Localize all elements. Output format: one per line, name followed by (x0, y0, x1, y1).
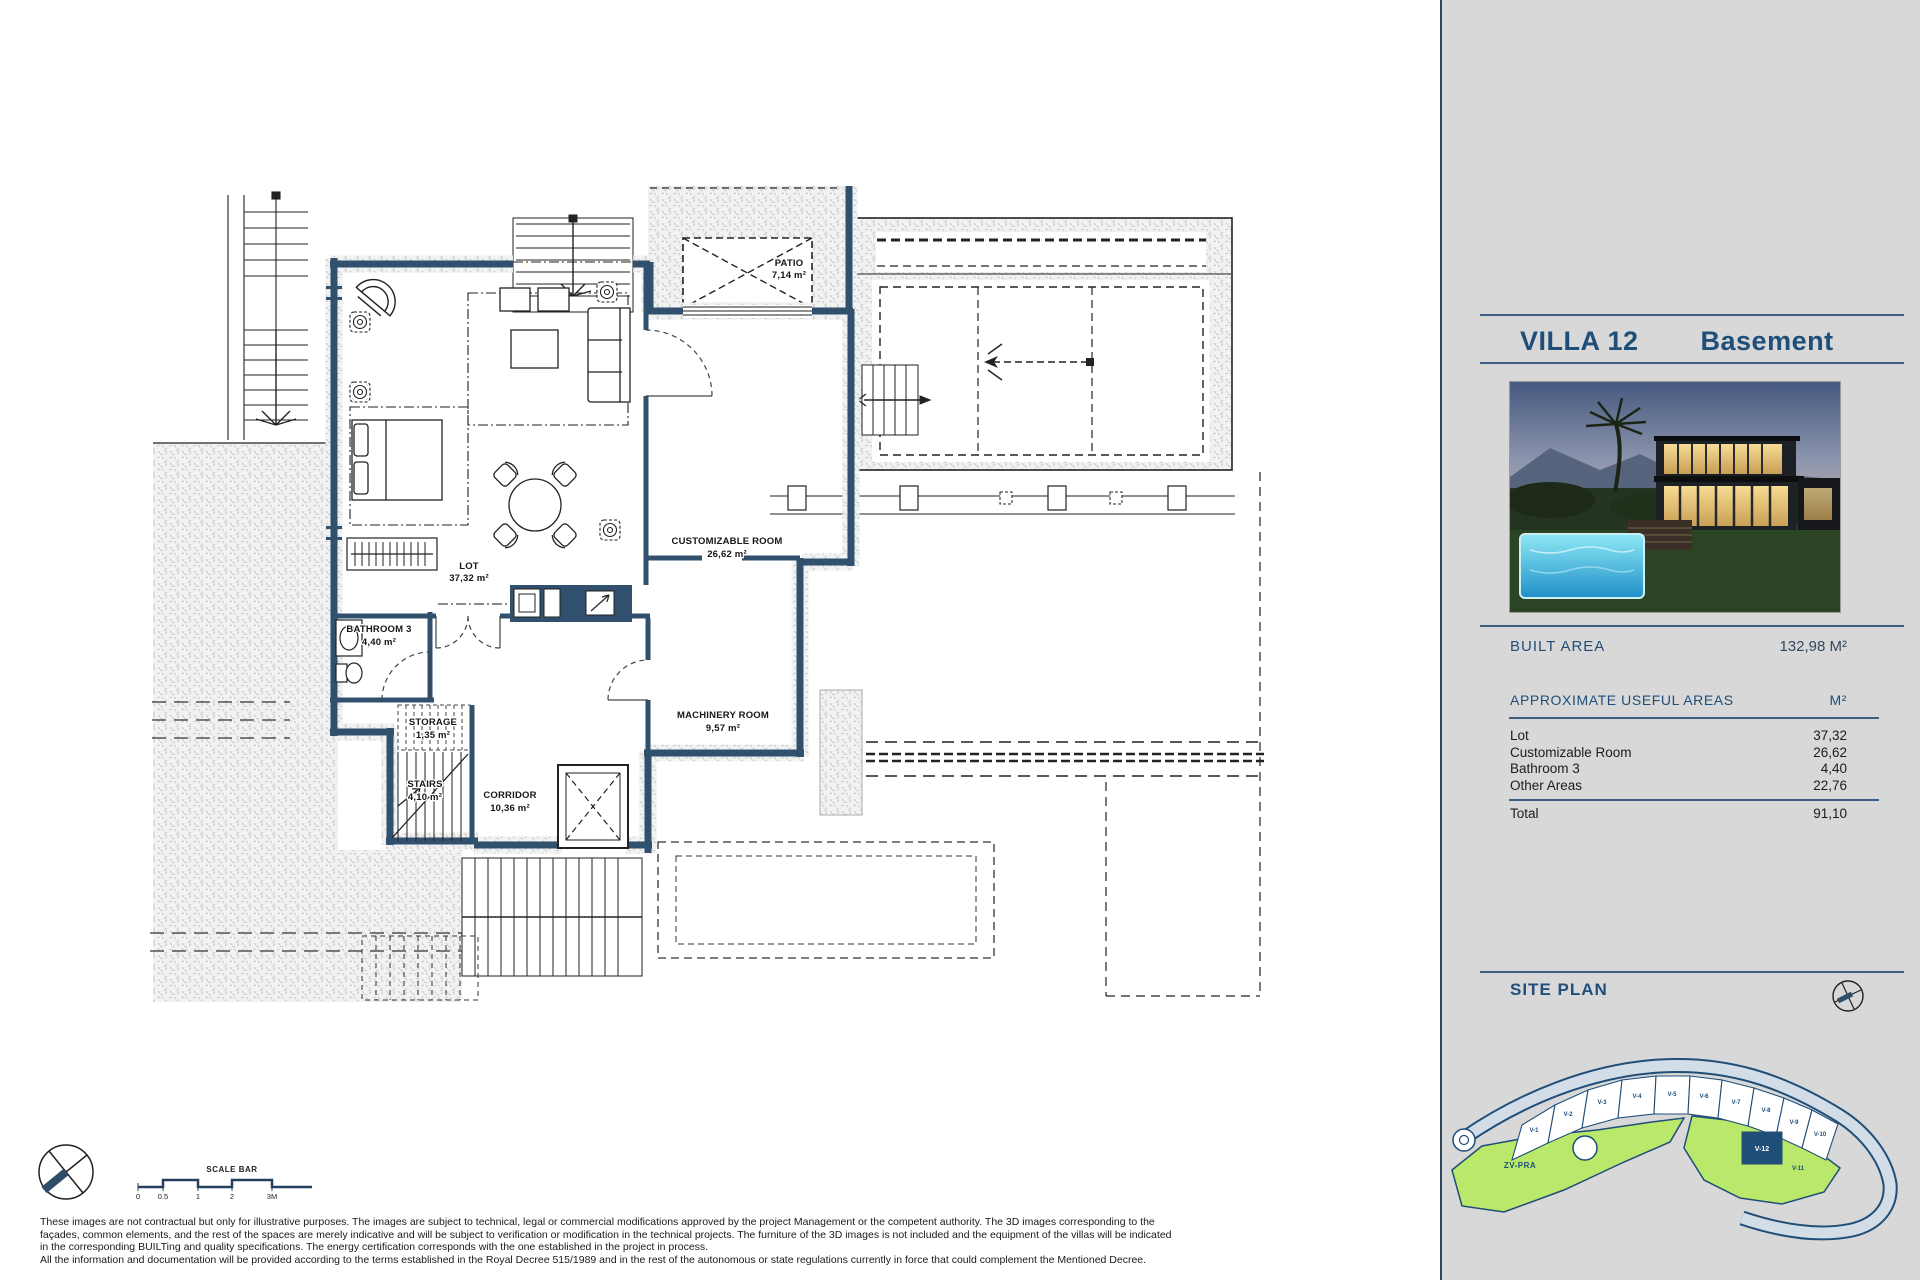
room-label-stairs: STAIRS (407, 779, 442, 790)
road-circle (1573, 1136, 1597, 1160)
svg-text:0.5: 0.5 (158, 1192, 168, 1201)
floor-plan-drawing: PATIO 7,14 m² LOT 37,32 m² CUSTOMIZABLE … (0, 0, 1440, 1280)
ceiling-speakers (350, 282, 620, 540)
svg-text:4,10 m²: 4,10 m² (408, 792, 442, 803)
scale-bar-label: SCALE BAR (206, 1165, 257, 1174)
roundabout (1453, 1129, 1475, 1151)
room-label-bathroom3: BATHROOM 3 (346, 624, 411, 635)
sheet-title: VILLA 12 Basement (1520, 326, 1900, 357)
svg-text:V-8: V-8 (1761, 1108, 1771, 1114)
exterior-stair-south (462, 858, 642, 976)
room-label-storage: STORAGE (409, 717, 457, 728)
villa-title: VILLA 12 (1520, 326, 1639, 357)
svg-text:1,35 m²: 1,35 m² (416, 730, 450, 741)
total-label: Total (1510, 806, 1539, 821)
svg-text:10,36 m²: 10,36 m² (490, 803, 530, 814)
svg-text:V-5: V-5 (1667, 1092, 1677, 1098)
bed (350, 407, 468, 525)
compass-rose-icon (39, 1145, 93, 1199)
sofa-set (468, 288, 630, 425)
built-area-label: BUILT AREA (1510, 638, 1605, 655)
site-plan-drawing: V-1 V-2 V-3 V-4 V-5 V-6 V-7 V-8 V-9 V-10… (1442, 1020, 1920, 1270)
villa-photo-art (1510, 382, 1840, 612)
site-plan-heading: SITE PLAN (1510, 980, 1608, 1000)
built-area-value: 132,98 M² (1779, 638, 1847, 655)
terrace-block (855, 218, 1232, 470)
useful-areas-rule-bottom (1509, 799, 1879, 801)
disclaimer-line: All the information and documentation wi… (40, 1254, 1430, 1267)
svg-text:V-3: V-3 (1597, 1100, 1607, 1106)
room-label-patio: PATIO (775, 258, 804, 269)
disclaimer-text: These images are not contractual but onl… (40, 1216, 1430, 1266)
useful-areas-heading: APPROXIMATE USEFUL AREAS (1510, 692, 1734, 708)
lot-v12-label: V-12 (1755, 1146, 1770, 1153)
closet (347, 538, 437, 570)
scale-bar: SCALE BAR 0 0.5 1 2 3M (136, 1165, 312, 1201)
svg-text:V-4: V-4 (1632, 1094, 1642, 1100)
svg-text:3M: 3M (267, 1192, 277, 1201)
title-rule-top (1480, 314, 1904, 316)
room-label-customizable: CUSTOMIZABLE ROOM (672, 536, 783, 547)
villa-photo (1510, 382, 1840, 612)
disclaimer-line: façades, common elements, and the rest o… (40, 1229, 1430, 1242)
lower-terrace-dashed (658, 842, 994, 958)
table-row: Customizable Room 26,62 (1510, 745, 1847, 762)
svg-text:4,40 m²: 4,40 m² (362, 637, 396, 648)
useful-areas-rule-top (1509, 717, 1879, 719)
dining-set (492, 460, 577, 551)
svg-text:7,14 m²: 7,14 m² (772, 270, 806, 281)
table-row: Lot 37,32 (1510, 728, 1847, 745)
svg-text:V-9: V-9 (1789, 1120, 1799, 1126)
title-rule-bottom (1480, 362, 1904, 364)
built-area-rule (1480, 625, 1904, 627)
info-sidebar: VILLA 12 Basement (1440, 0, 1920, 1280)
total-value: 91,10 (1813, 806, 1847, 821)
svg-text:V-6: V-6 (1699, 1094, 1709, 1100)
north-compass-icon (1830, 978, 1866, 1019)
svg-text:26,62 m²: 26,62 m² (707, 549, 747, 560)
svg-text:9,57 m²: 9,57 m² (706, 723, 740, 734)
built-area-row: BUILT AREA 132,98 M² (1510, 638, 1847, 655)
svg-text:2: 2 (230, 1192, 234, 1201)
retaining-pier-wall (770, 486, 1235, 514)
total-row: Total 91,10 (1510, 806, 1847, 821)
svg-text:V-1: V-1 (1529, 1128, 1539, 1134)
floor-title: Basement (1701, 326, 1834, 357)
useful-areas-header: APPROXIMATE USEFUL AREAS M² (1510, 692, 1847, 708)
exterior-stair-west (228, 192, 308, 440)
site-plan-rule (1480, 971, 1904, 973)
disclaimer-line: in the corresponding BUILTing and qualit… (40, 1241, 1430, 1254)
svg-text:V-7: V-7 (1731, 1100, 1741, 1106)
disclaimer-line: These images are not contractual but onl… (40, 1216, 1430, 1229)
utility-lines (866, 472, 1264, 996)
svg-text:V-11: V-11 (1792, 1166, 1805, 1172)
room-label-corridor: CORRIDOR (483, 790, 536, 801)
svg-text:V-10: V-10 (1814, 1132, 1827, 1138)
useful-areas-unit: M² (1829, 692, 1847, 708)
green-area-label: ZV-PRA (1504, 1161, 1536, 1170)
svg-text:0: 0 (136, 1192, 140, 1201)
kitchen-counter (510, 585, 632, 622)
svg-text:V-2: V-2 (1563, 1112, 1573, 1118)
svg-text:1: 1 (196, 1192, 200, 1201)
table-row: Bathroom 3 4,40 (1510, 761, 1847, 778)
svg-text:37,32 m²: 37,32 m² (449, 573, 489, 584)
table-row: Other Areas 22,76 (1510, 778, 1847, 795)
room-label-machinery: MACHINERY ROOM (677, 710, 769, 721)
room-label-lot: LOT (459, 561, 479, 572)
useful-areas-table: Lot 37,32 Customizable Room 26,62 Bathro… (1510, 728, 1847, 794)
elevator-shaft (558, 765, 628, 848)
